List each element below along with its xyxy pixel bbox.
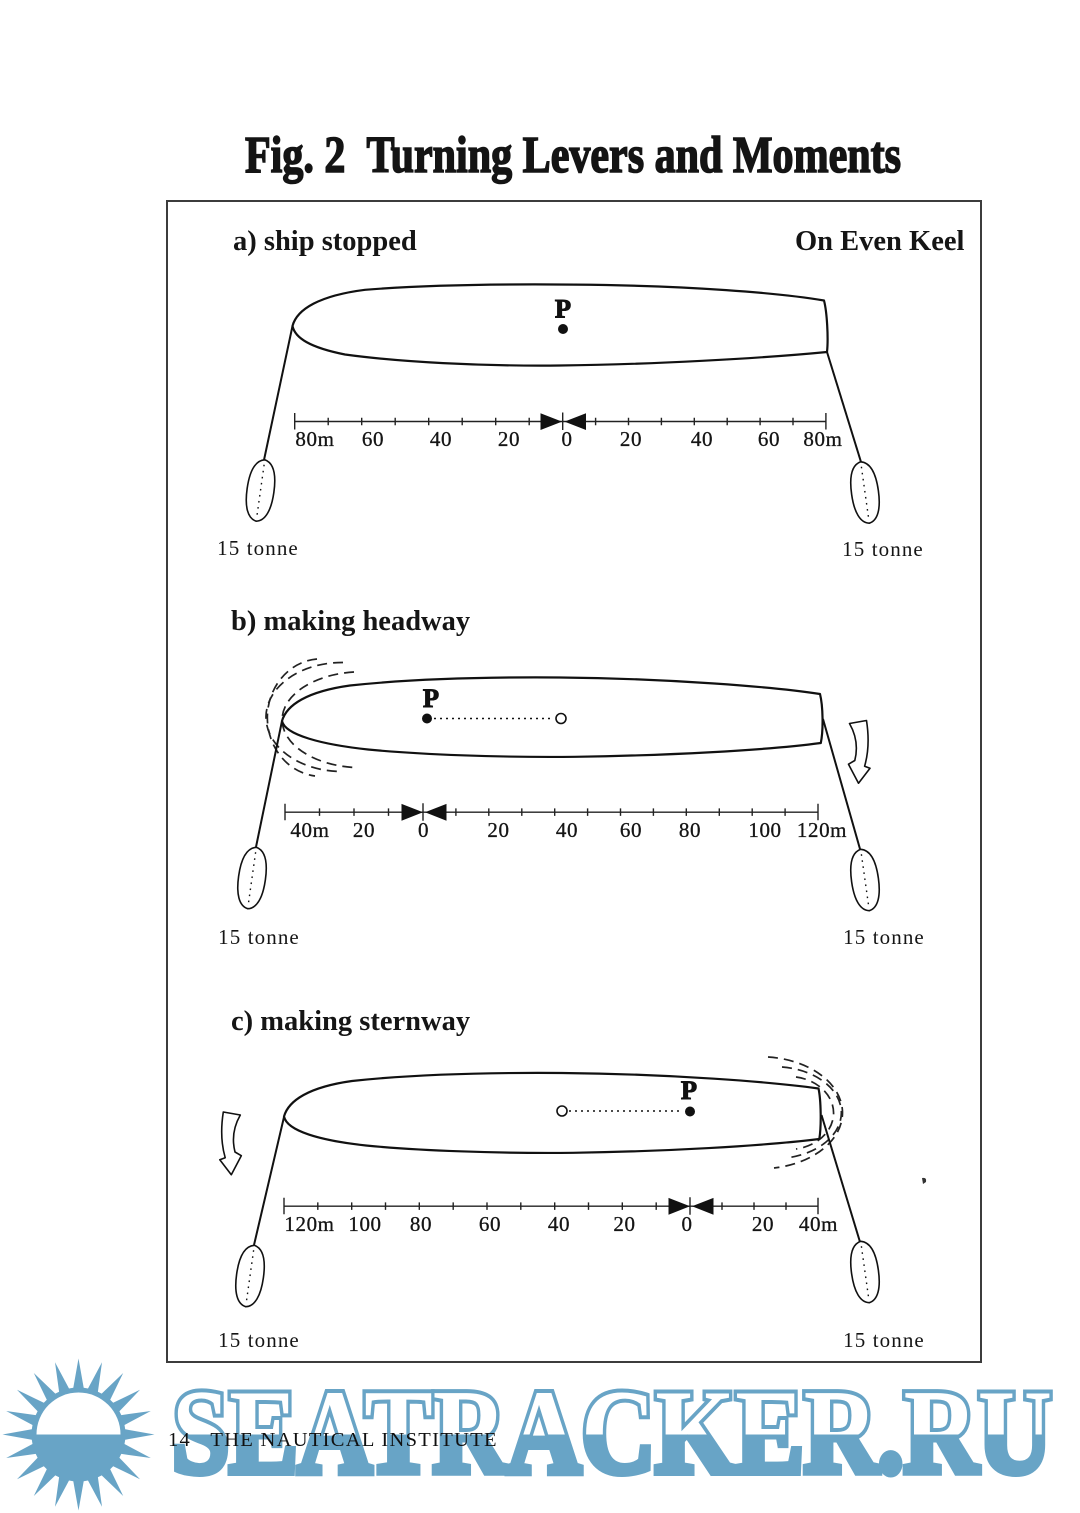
svg-text:20: 20 <box>620 427 642 451</box>
svg-text:14 THE NAUTICAL INSTITUTE: 14 THE NAUTICAL INSTITUTE <box>168 1429 498 1451</box>
svg-text:80m: 80m <box>295 427 334 451</box>
svg-text:80m: 80m <box>803 427 842 451</box>
svg-text:b) making headway: b) making headway <box>231 606 470 637</box>
svg-text:0: 0 <box>681 1212 692 1236</box>
svg-text:0: 0 <box>561 427 572 451</box>
svg-text:15 tonne: 15 tonne <box>217 536 299 560</box>
svg-text:40: 40 <box>548 1212 570 1236</box>
svg-text:20: 20 <box>752 1212 774 1236</box>
svg-text:20: 20 <box>487 818 509 842</box>
svg-text:40m: 40m <box>290 818 329 842</box>
svg-text:120m: 120m <box>797 818 847 842</box>
svg-text:20: 20 <box>613 1212 635 1236</box>
svg-text:15 tonne: 15 tonne <box>843 1328 925 1352</box>
svg-text:15 tonne: 15 tonne <box>218 1328 300 1352</box>
svg-text:15 tonne: 15 tonne <box>843 925 925 949</box>
svg-text:40: 40 <box>691 427 713 451</box>
svg-text:0: 0 <box>418 818 429 842</box>
svg-text:60: 60 <box>620 818 642 842</box>
svg-text:15 tonne: 15 tonne <box>842 537 924 561</box>
svg-text:80: 80 <box>679 818 701 842</box>
svg-text:20: 20 <box>498 427 520 451</box>
svg-text:60: 60 <box>362 427 384 451</box>
svg-text:80: 80 <box>410 1212 432 1236</box>
svg-text:40: 40 <box>556 818 578 842</box>
svg-text:P: P <box>555 294 571 324</box>
svg-text:15 tonne: 15 tonne <box>218 925 300 949</box>
svg-text:On Even Keel: On Even Keel <box>795 226 964 257</box>
svg-text:100: 100 <box>348 1212 381 1236</box>
svg-text:Fig. 2 Turning Levers and Mom: Fig. 2 Turning Levers and Moments <box>245 127 901 184</box>
svg-text:60: 60 <box>758 427 780 451</box>
svg-text:60: 60 <box>479 1212 501 1236</box>
svg-text:40m: 40m <box>799 1212 838 1236</box>
svg-text:20: 20 <box>353 818 375 842</box>
svg-text:120m: 120m <box>284 1212 334 1236</box>
svg-text:100: 100 <box>748 818 781 842</box>
svg-text:40: 40 <box>430 427 452 451</box>
svg-text:a) ship stopped: a) ship stopped <box>233 226 417 257</box>
svg-text:P: P <box>423 683 439 713</box>
svg-text:P: P <box>681 1075 697 1105</box>
svg-text:c) making sternway: c) making sternway <box>231 1006 470 1037</box>
